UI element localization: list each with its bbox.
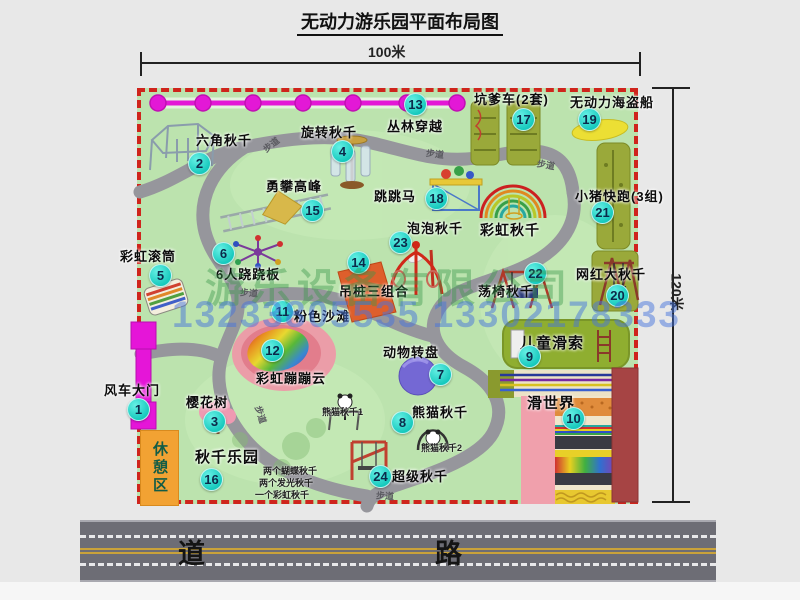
label-big-swing: 网红大秋千 xyxy=(576,264,646,283)
label-rainbow-swing: 彩虹秋千 xyxy=(480,220,540,240)
badge-7: 7 xyxy=(429,363,452,386)
badge-19: 19 xyxy=(578,108,601,131)
label-rotating-swing: 旋转秋千 xyxy=(301,122,357,141)
label-animal-turntable: 动物转盘 xyxy=(383,342,439,361)
badge-8: 8 xyxy=(391,411,414,434)
badge-23: 23 xyxy=(389,231,412,254)
badge-3: 3 xyxy=(203,410,226,433)
badge-14: 14 xyxy=(347,251,370,274)
road-label: 道 路 xyxy=(0,532,680,571)
badge-10: 10 xyxy=(562,407,585,430)
badge-17: 17 xyxy=(512,108,535,131)
badge-18: 18 xyxy=(425,187,448,210)
label-piggy-run: 小猪快跑(3组) xyxy=(575,186,664,205)
rest-area-label: 休憩区 xyxy=(149,441,170,495)
label-hanging-piles: 吊桩三组合 xyxy=(339,281,409,300)
badge-11: 11 xyxy=(271,300,294,323)
rest-area-box: 休憩区 xyxy=(140,430,179,506)
badge-22: 22 xyxy=(524,262,547,285)
path-label: 步道 xyxy=(240,285,259,299)
sublabel-panda-swing-1: 熊猫秋千1 xyxy=(322,405,363,418)
label-pit-cart: 坑爹车(2套) xyxy=(474,89,549,108)
badge-12: 12 xyxy=(261,339,284,362)
label-hexagon-swing: 六角秋千 xyxy=(196,130,252,149)
badge-9: 9 xyxy=(518,345,541,368)
dimension-height-label: 120米 xyxy=(667,273,687,310)
label-swing-park: 秋千乐园 xyxy=(195,446,259,467)
label-panda-swing: 熊猫秋千 xyxy=(412,402,468,421)
label-jumping-horse: 跳跳马 xyxy=(374,186,416,205)
label-super-swing: 超级秋千 xyxy=(392,466,448,485)
dimension-width-label: 100米 xyxy=(368,42,405,62)
badge-20: 20 xyxy=(606,284,629,307)
label-jungle-crossing: 丛林穿越 xyxy=(387,116,443,135)
badge-15: 15 xyxy=(301,199,324,222)
badge-13: 13 xyxy=(404,93,427,116)
bottom-margin xyxy=(0,582,800,600)
sublabel-swing-note-3: 一个彩虹秋千 xyxy=(255,488,309,501)
sublabel-panda-swing-2: 熊猫秋千2 xyxy=(421,441,462,454)
badge-4: 4 xyxy=(331,140,354,163)
label-rainbow-roller: 彩虹滚筒 xyxy=(120,246,176,265)
label-swing-chair: 荡椅秋千 xyxy=(478,281,534,300)
path-label: 步道 xyxy=(425,146,444,161)
badge-2: 2 xyxy=(188,152,211,175)
page-title: 无动力游乐园平面布局图 xyxy=(0,8,800,34)
playground-plan-page: 无动力游乐园平面布局图 休憩区 道 路 100米 120米 xyxy=(0,0,800,600)
label-rainbow-cloud: 彩虹蹦蹦云 xyxy=(256,368,326,387)
label-pink-beach: 粉色沙滩 xyxy=(294,306,350,325)
label-seesaw: 6人跷跷板 xyxy=(216,264,280,283)
badge-6: 6 xyxy=(212,242,235,265)
badge-5: 5 xyxy=(149,264,172,287)
label-windmill-gate: 风车大门 xyxy=(104,380,160,399)
badge-24: 24 xyxy=(369,465,392,488)
badge-1: 1 xyxy=(127,398,150,421)
label-climbing-peak: 勇攀高峰 xyxy=(266,176,322,195)
label-bubble-swing: 泡泡秋千 xyxy=(407,218,463,237)
badge-21: 21 xyxy=(591,201,614,224)
label-cherry-tree: 樱花树 xyxy=(186,392,228,411)
label-pirate-ship: 无动力海盗船 xyxy=(570,92,654,111)
path-label: 步道 xyxy=(376,488,395,502)
badge-16: 16 xyxy=(200,468,223,491)
